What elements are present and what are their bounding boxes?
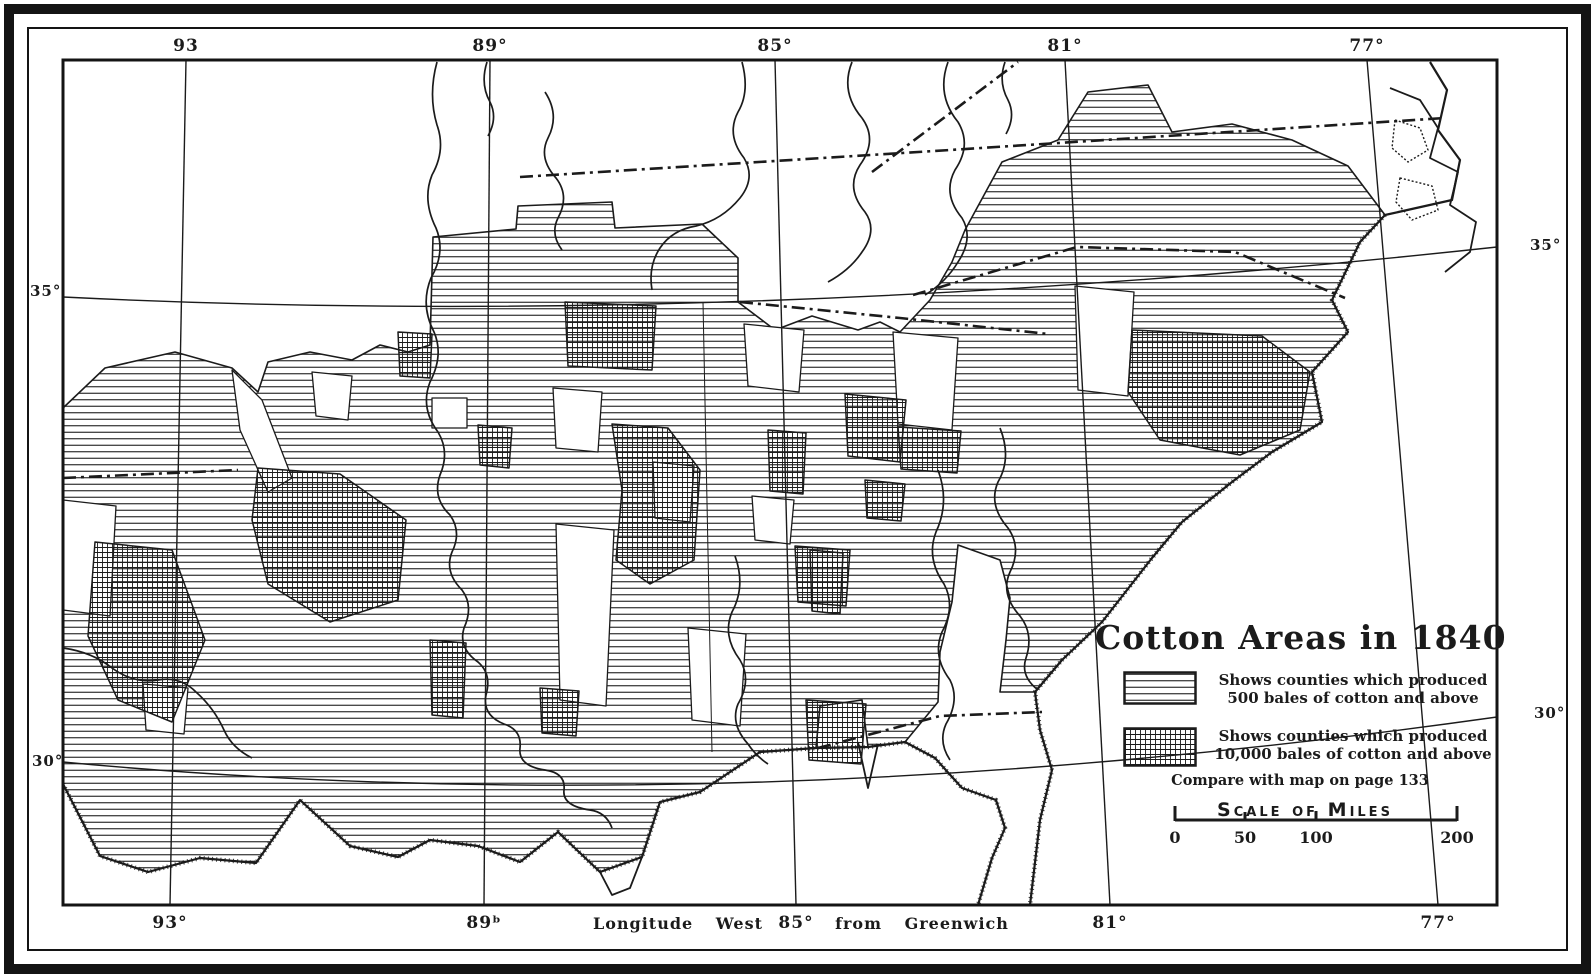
legend-item-10000-line1: Shows counties which produced (1209, 727, 1497, 745)
meridian-label-top-89: 89° (472, 36, 507, 56)
scale-bar-graphic (1165, 804, 1475, 828)
parallel-label-left-35: 35° (30, 282, 61, 300)
bottom-caption-longitude-west: Longitude West (593, 914, 763, 933)
parallel-label-left-30: 30° (32, 752, 63, 770)
scale-tick-50: 50 (1234, 828, 1256, 847)
legend-item-10000-bales: Shows counties which produced 10,000 bal… (1123, 727, 1505, 767)
hatch-horizontal-swatch-icon (1123, 671, 1197, 705)
meridian-label-top-77: 77° (1349, 36, 1384, 56)
meridian-label-top-85: 85° (757, 36, 792, 56)
meridian-label-bottom-89: 89ᵇ (466, 913, 501, 933)
legend-item-500-line2: 500 bales of cotton and above (1209, 689, 1497, 707)
meridian-label-bottom-85: 85° (778, 913, 813, 933)
meridian-label-top-93: 93 (173, 36, 199, 56)
scale-bar: 0 50 100 200 (1165, 804, 1475, 856)
legend-item-500-line1: Shows counties which produced (1209, 671, 1497, 689)
legend-item-500-bales: Shows counties which produced 500 bales … (1123, 671, 1505, 707)
hatch-grid-swatch-icon (1123, 727, 1197, 767)
meridian-label-top-81: 81° (1047, 36, 1082, 56)
meridian-label-bottom-93: 93° (152, 913, 187, 933)
legend-item-10000-line2: 10,000 bales of cotton and above (1209, 745, 1497, 763)
map-page: 93 89° 85° 81° 77° 93° 89ᵇ 85° 81° 77° L… (0, 0, 1595, 978)
parallel-label-right-30: 30° (1534, 704, 1565, 722)
scale-tick-200: 200 (1440, 828, 1473, 847)
meridian-label-bottom-81: 81° (1092, 913, 1127, 933)
legend-note: Compare with map on page 133 (1135, 772, 1465, 789)
legend: Cotton Areas in 1840 Shows counties whic… (1095, 618, 1505, 821)
scale-tick-0: 0 (1169, 828, 1180, 847)
meridian-label-bottom-77: 77° (1420, 913, 1455, 933)
bottom-caption-from-greenwich: from Greenwich (835, 914, 1009, 933)
parallel-label-right-35: 35° (1530, 236, 1561, 254)
scale-tick-100: 100 (1299, 828, 1332, 847)
map-title: Cotton Areas in 1840 (1095, 618, 1505, 657)
